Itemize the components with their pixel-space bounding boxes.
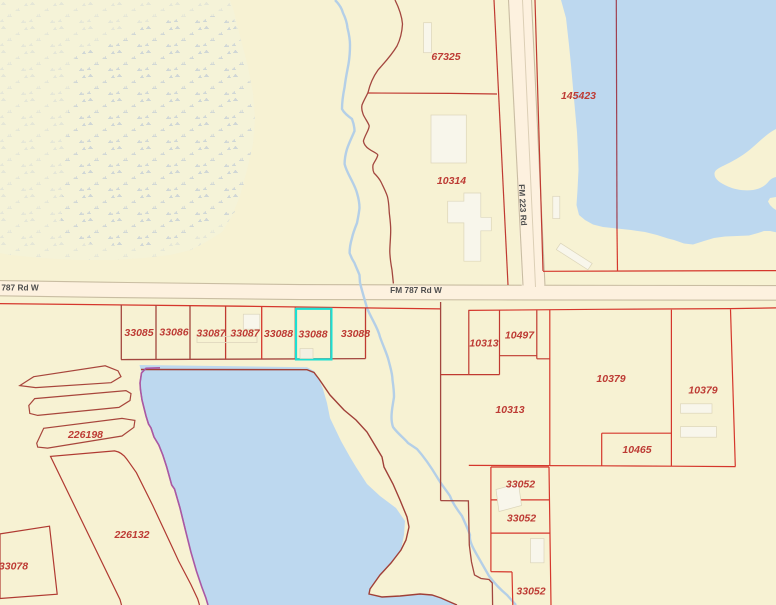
svg-text:33086: 33086 bbox=[159, 327, 188, 339]
svg-text:10379: 10379 bbox=[688, 385, 717, 397]
svg-text:33088: 33088 bbox=[298, 329, 327, 341]
svg-text:33087: 33087 bbox=[230, 328, 260, 340]
svg-text:226198: 226198 bbox=[67, 429, 103, 441]
svg-text:33088: 33088 bbox=[264, 328, 293, 340]
svg-text:10313: 10313 bbox=[495, 404, 524, 416]
svg-text:33078: 33078 bbox=[0, 561, 28, 573]
svg-text:33052: 33052 bbox=[516, 586, 545, 598]
svg-text:33087: 33087 bbox=[196, 328, 226, 340]
svg-text:67325: 67325 bbox=[431, 51, 460, 63]
svg-text:33085: 33085 bbox=[124, 327, 153, 339]
svg-text:10497: 10497 bbox=[505, 330, 535, 342]
svg-text:33088: 33088 bbox=[341, 328, 370, 340]
svg-text:10313: 10313 bbox=[469, 338, 498, 350]
svg-text:145423: 145423 bbox=[561, 90, 596, 102]
svg-text:10379: 10379 bbox=[596, 373, 625, 385]
svg-text:10314: 10314 bbox=[437, 175, 466, 187]
svg-text:33052: 33052 bbox=[506, 479, 535, 491]
svg-text:226132: 226132 bbox=[113, 529, 149, 541]
svg-text:FM 787 Rd W: FM 787 Rd W bbox=[390, 285, 442, 295]
svg-text:33052: 33052 bbox=[507, 513, 536, 525]
svg-text:787 Rd W: 787 Rd W bbox=[1, 283, 39, 293]
svg-text:10465: 10465 bbox=[622, 444, 651, 456]
